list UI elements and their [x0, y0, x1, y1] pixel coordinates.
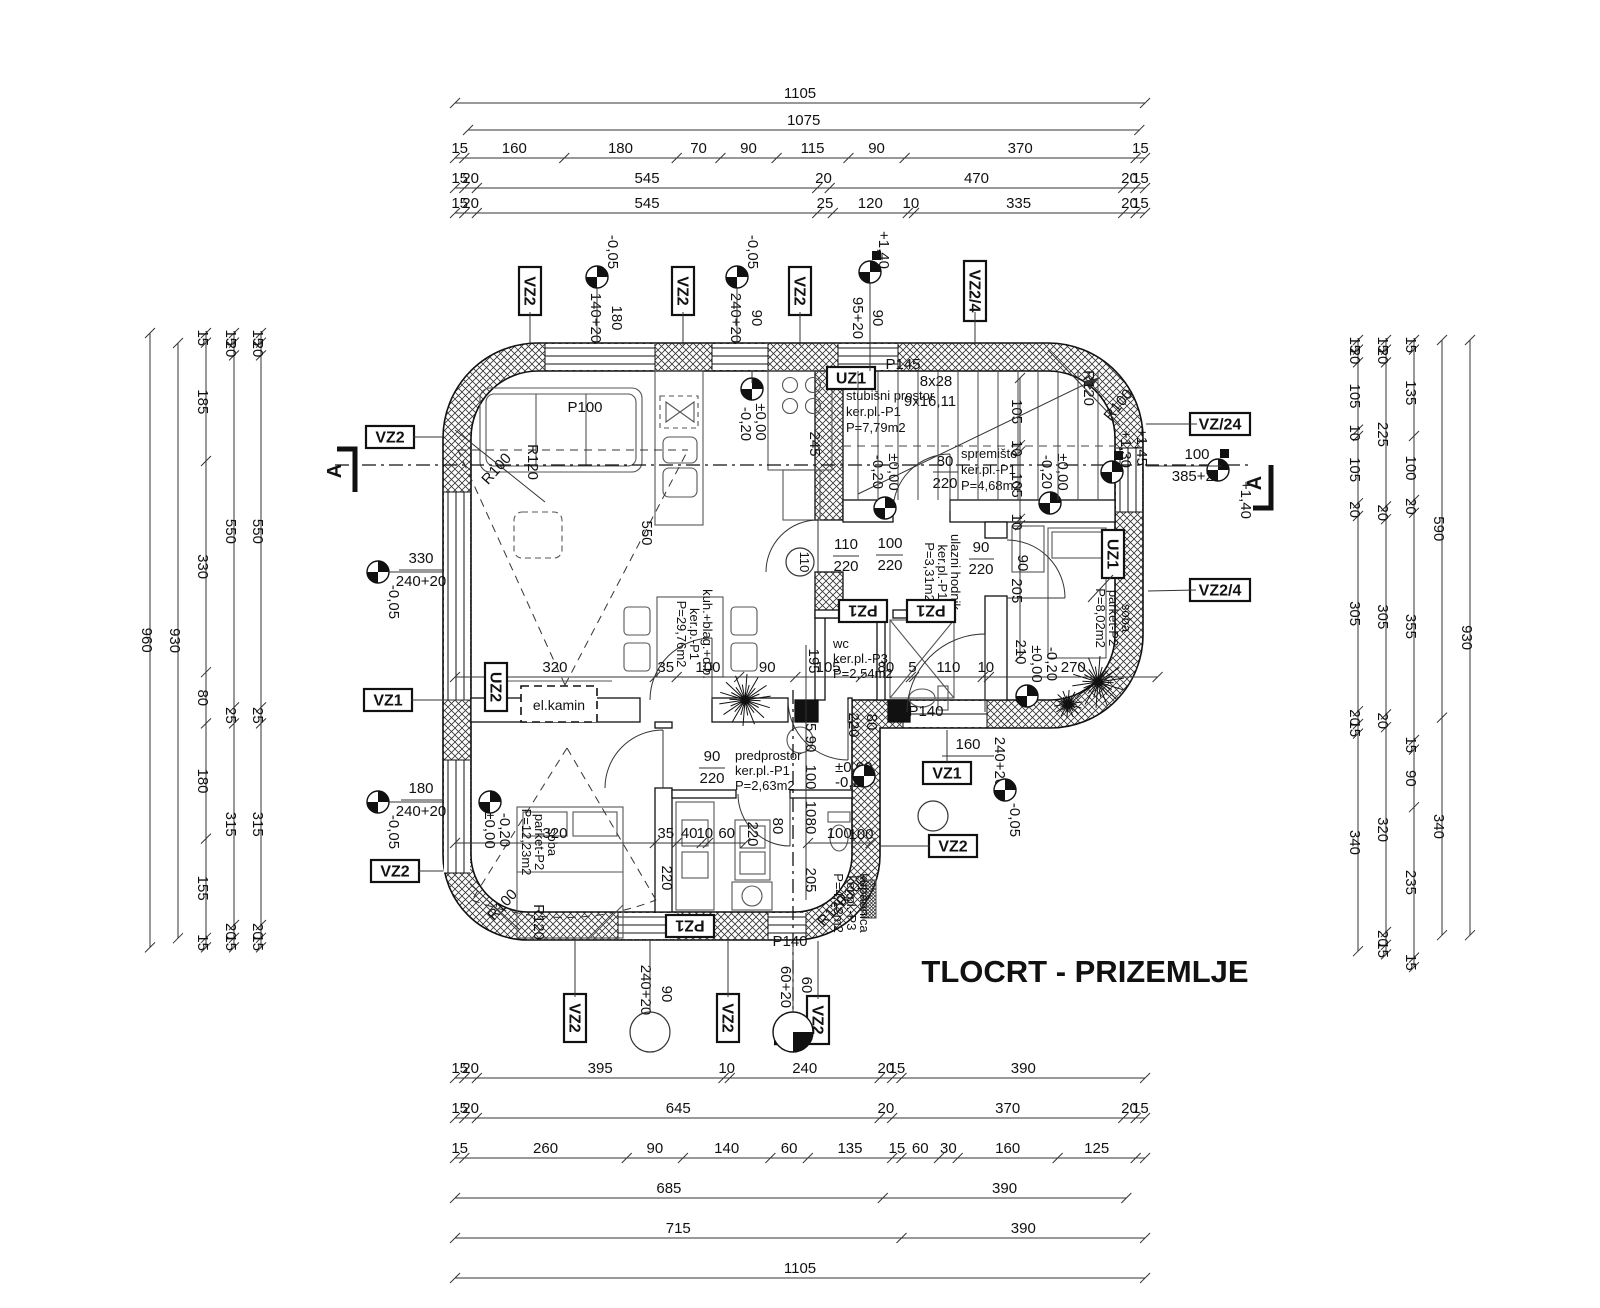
marker-box: VZ2 — [366, 426, 414, 448]
dim-label: 205 — [802, 867, 819, 892]
dim-label: 105 — [1346, 457, 1363, 482]
marker-label: VZ/24 — [1199, 417, 1242, 434]
burner — [783, 399, 798, 414]
dim-label: 210 — [1012, 639, 1029, 664]
leader-line — [1148, 590, 1196, 591]
dim-label: 10 — [802, 801, 819, 818]
drawing-title: TLOCRT - PRIZEMLJE — [921, 954, 1248, 989]
dim-label: 180 — [408, 780, 433, 797]
dim-label: 135 — [837, 1140, 862, 1157]
chair — [624, 607, 650, 635]
marker-label: VZ2 — [375, 430, 404, 447]
room-label: predprostor — [735, 748, 802, 763]
dim-label: 15 — [888, 1140, 905, 1157]
dim-label: 15 — [194, 329, 211, 346]
marker-label: VZ2 — [719, 1003, 736, 1032]
dim-label: 240+20 — [396, 573, 446, 590]
benchmark-flag-icon — [1114, 451, 1123, 460]
dim-label: 340 — [1430, 814, 1447, 839]
marker-box: UZ2 — [485, 663, 507, 711]
dim-label: 120 — [858, 195, 883, 212]
door-soba2 — [605, 730, 663, 788]
dim-label: 240+20 — [396, 803, 446, 820]
window-top-2 — [712, 344, 768, 370]
dim-label: 1105 — [784, 85, 816, 102]
dim-label: P140 — [908, 703, 943, 720]
dim-label: -0,20 — [737, 407, 754, 441]
dim-label: 60 — [718, 825, 735, 842]
dim-label: 25 — [802, 715, 819, 732]
dim-label: 205 — [1008, 578, 1025, 603]
section-letter: A — [1244, 476, 1266, 490]
dim-label: 20 — [249, 341, 266, 358]
marker-label: VZ1 — [373, 693, 402, 710]
marker-box: UZ1 — [827, 367, 875, 389]
dim-label: 90 — [1014, 555, 1031, 572]
room-label: ker.pl.-P1 — [735, 763, 790, 778]
section-letter: A — [324, 464, 346, 478]
partition-kupaonica-b — [790, 790, 852, 798]
dim-label: 370 — [1008, 140, 1033, 157]
dim-label: 35 — [657, 825, 674, 842]
marker-label: VZ2/4 — [1199, 583, 1242, 600]
dim-label: 15 — [451, 1140, 468, 1157]
dim-label: 95+20 — [849, 297, 866, 339]
benchmark-flag-icon — [1220, 449, 1229, 458]
marker-box: PZ1 — [907, 600, 955, 622]
dim-label: 20 — [815, 170, 832, 187]
dim-label: 80 — [863, 714, 880, 731]
dim-label: 80 — [769, 818, 786, 835]
marker-label: UZ1 — [1104, 539, 1121, 569]
room-label: stubišni prostor — [846, 388, 935, 403]
marker-label: VZ2/4 — [966, 270, 983, 313]
dim-label: 10 — [696, 825, 713, 842]
marker-label: UZ2 — [487, 672, 504, 702]
dim-label: 180 — [194, 768, 211, 793]
dim-label: 220 — [833, 558, 858, 575]
marker-label: VZ2 — [674, 276, 691, 305]
dim-label: 320 — [1374, 817, 1391, 842]
dim-label: 20 — [1346, 501, 1363, 518]
dim-label: 20 — [462, 1100, 479, 1117]
marker-label: VZ2 — [521, 276, 538, 305]
dim-label: -0,05 — [604, 235, 621, 269]
dim-label: R120 — [524, 444, 541, 480]
marker-box: VZ2 — [929, 835, 977, 857]
dim-label: 550 — [222, 519, 239, 544]
dim-label: 550 — [249, 519, 266, 544]
dim-label: 20 — [1346, 348, 1363, 365]
dim-label: 105 — [1346, 383, 1363, 408]
wall-hodnik-soba-b — [985, 596, 1007, 700]
fireplace-label: el.kamin — [533, 697, 585, 713]
dim-label: 90 — [973, 539, 990, 556]
dim-label: 395 — [588, 1060, 613, 1077]
dim-label: 90 — [868, 140, 885, 157]
dim-label: ±0,00 — [1028, 645, 1045, 682]
dim-label: 115 — [801, 140, 825, 157]
marker-label: VZ2 — [566, 1003, 583, 1032]
dim-label: 135 — [1402, 380, 1419, 405]
kitchen-counter — [655, 371, 703, 525]
dim-label: 240+20 — [727, 293, 744, 343]
dim-label: +1,30 — [1117, 430, 1134, 468]
dim-label: ±0,00 — [885, 453, 902, 490]
room-label: P=3,31m2 — [922, 542, 937, 602]
dim-label: 90 — [869, 310, 886, 327]
room-label: P=12,23m2 — [519, 809, 534, 876]
floor-plan-drawing: 1105107515160180709011590370151520545204… — [0, 0, 1600, 1308]
dim-label: 545 — [635, 195, 660, 212]
dim-label: 390 — [992, 1180, 1017, 1197]
dim-label: 320 — [542, 659, 567, 676]
dim-label: 180 — [608, 305, 625, 330]
dim-label: 10 — [1008, 514, 1025, 531]
partition-kupaonica-a — [672, 790, 736, 798]
dim-label: 90 — [658, 986, 675, 1003]
dim-label: P145 — [885, 356, 920, 373]
marker-box: PZ1 — [666, 915, 714, 937]
dim-label: 140 — [714, 1140, 739, 1157]
dim-label: 20 — [222, 341, 239, 358]
dim-label: 315 — [249, 812, 266, 837]
dim-label: 100 — [877, 535, 902, 552]
dim-label: 15 — [1132, 170, 1149, 187]
marker-box: VZ2 — [519, 267, 541, 315]
room-label: ker.pl.-P1 — [961, 462, 1016, 477]
dim-label: 90 — [1402, 770, 1419, 787]
dim-label: 335 — [1006, 195, 1031, 212]
dim-label: 330 — [408, 550, 433, 567]
dim-label: 220 — [699, 770, 724, 787]
dim-label: 240+20 — [637, 965, 654, 1015]
dim-label: ±0,00 — [1054, 453, 1071, 490]
dim-label: 1075 — [787, 112, 820, 129]
dim-label: 15 — [1374, 941, 1391, 958]
dim-label: 100 — [848, 826, 873, 843]
dim-label: R100 — [478, 450, 515, 488]
dim-label: 305 — [1346, 601, 1363, 626]
dim-label: 15 — [222, 934, 239, 951]
dim-label: 15 — [451, 140, 468, 157]
dim-label: 140+20 — [587, 293, 604, 343]
dim-label: 60 — [781, 1140, 798, 1157]
marker-box: VZ2 — [717, 994, 739, 1042]
fridge-symbol — [666, 402, 694, 422]
dim-label: 10 — [977, 659, 994, 676]
room-label: ker.pl.-P1 — [846, 404, 901, 419]
marker-box: UZ1 — [1102, 530, 1124, 578]
chair — [624, 643, 650, 671]
dim-label: 930 — [166, 628, 183, 653]
dim-label: 240 — [792, 1060, 817, 1077]
dim-label: 25 — [817, 195, 834, 212]
dim-label: 15 — [1132, 195, 1149, 212]
reference-circle — [630, 1012, 670, 1052]
chair — [731, 607, 757, 635]
dim-label: 645 — [666, 1100, 691, 1117]
dim-label: 60+20 — [777, 966, 794, 1008]
dim-label: 590 — [1430, 516, 1447, 541]
room-label: P=8,02m2 — [1093, 588, 1108, 648]
dim-label: ±0,00 — [481, 811, 498, 848]
marker-box: VZ1 — [364, 689, 412, 711]
dim-label: 960 — [138, 628, 155, 653]
dim-label: 110 — [834, 536, 858, 553]
sink — [663, 468, 697, 497]
room-label: wc — [832, 636, 849, 651]
marker-label: PZ1 — [675, 917, 704, 934]
dim-label: 225 — [1374, 422, 1391, 447]
reference-circle — [918, 801, 948, 831]
dim-label: P140 — [772, 933, 807, 950]
dim-label: 220 — [845, 712, 862, 737]
dim-label: P100 — [567, 399, 602, 416]
dim-label: 235 — [1402, 870, 1419, 895]
room-label: spremište — [961, 446, 1017, 461]
dim-label: 40 — [681, 825, 698, 842]
burner — [783, 378, 798, 393]
wall-stairs-bottom-b — [950, 500, 1115, 522]
marker-box: VZ2 — [564, 994, 586, 1042]
dim-label: R120 — [1080, 370, 1097, 406]
dim-label: 220 — [744, 821, 761, 846]
dim-label: 25 — [222, 707, 239, 724]
dim-label: 160 — [995, 1140, 1020, 1157]
dim-label: 20 — [462, 195, 479, 212]
dim-label: 305 — [1374, 604, 1391, 629]
dim-label: 30 — [940, 1140, 957, 1157]
dim-label: -0,05 — [385, 815, 402, 849]
room-label: P=2,63m2 — [735, 778, 795, 793]
dim-label: 245 — [806, 431, 823, 456]
sofa-seat — [486, 394, 636, 466]
dim-label: 195 — [805, 648, 822, 673]
dim-label: 90 — [704, 748, 721, 765]
wardrobe-door — [682, 852, 708, 878]
dim-label: 550 — [638, 520, 655, 545]
dim-label: 390 — [1011, 1060, 1036, 1077]
room-label: P=2,54m2 — [833, 666, 893, 681]
dim-label: 545 — [635, 170, 660, 187]
section-b-marker — [793, 1032, 813, 1052]
dim-label: 35 — [657, 659, 674, 676]
room-label: P=29,76m2 — [674, 601, 689, 668]
marker-box: VZ/24 — [1190, 413, 1250, 435]
window-top-1 — [545, 344, 655, 370]
dim-label: 20 — [878, 1100, 895, 1117]
dim-label: R120 — [530, 904, 547, 940]
floor-plan-sheet: { "title": "TLOCRT - PRIZEMLJE", "colors… — [0, 0, 1600, 1308]
dim-label: 10 — [1346, 424, 1363, 441]
dim-label: -0,20 — [496, 813, 513, 847]
dim-label: 100 — [1402, 455, 1419, 480]
bed-left-pillow — [573, 812, 617, 836]
dim-label: 220 — [877, 557, 902, 574]
armchair — [514, 512, 562, 558]
dim-label: 155 — [194, 876, 211, 901]
marker-label: PZ1 — [916, 602, 945, 619]
dim-label: 220 — [658, 865, 675, 890]
dim-label: 125 — [1084, 1140, 1109, 1157]
wall-hodnik-soba-a — [985, 522, 1007, 538]
dim-label: 685 — [656, 1180, 681, 1197]
wall-soba2-right — [655, 788, 672, 912]
dim-label: 15 — [888, 1060, 905, 1077]
dim-label: 110 — [936, 659, 960, 676]
dim-label: 90 — [802, 736, 819, 753]
dim-label: 180 — [608, 140, 633, 157]
dim-label: 60 — [912, 1140, 929, 1157]
dim-label: 220 — [968, 561, 993, 578]
room-label: P=7,79m2 — [846, 420, 906, 435]
marker-label: VZ1 — [932, 766, 961, 783]
dim-label: 15 — [194, 934, 211, 951]
window-left-1 — [444, 492, 470, 700]
marker-box: VZ2 — [789, 267, 811, 315]
dim-label: 80 — [194, 689, 211, 706]
marker-label: PZ1 — [848, 602, 877, 619]
dim-label: 90 — [740, 140, 757, 157]
wall-soba2-right-top — [655, 722, 672, 728]
dim-label: 80 — [802, 818, 819, 835]
marker-label: VZ2 — [380, 864, 409, 881]
dim-label: 100 — [802, 764, 819, 789]
dim-label: 330 — [194, 554, 211, 579]
dim-label: -0,20 — [1038, 455, 1055, 489]
dim-label: 15 — [1402, 336, 1419, 353]
dim-label: 15 — [1132, 140, 1149, 157]
marker-box: VZ2 — [672, 267, 694, 315]
dim-label: 1105 — [784, 1260, 816, 1277]
dim-label: 100 — [1184, 446, 1209, 463]
dim-label: 315 — [222, 812, 239, 837]
dim-label: 20 — [1374, 504, 1391, 521]
marker-label: VZ2 — [791, 276, 808, 305]
marker-label: VZ2 — [938, 839, 967, 856]
marker-label: UZ1 — [836, 371, 866, 388]
dim-label: 20 — [1374, 712, 1391, 729]
dim-label: +1,45 — [1133, 428, 1150, 466]
bath-cabinet-door — [740, 852, 765, 874]
dim-label: 5 — [908, 659, 916, 676]
dim-label: -0,05 — [385, 585, 402, 619]
dim-label: 15 — [1402, 736, 1419, 753]
dim-label: 15 — [249, 934, 266, 951]
washing-machine-drum — [742, 886, 762, 906]
dim-label: 25 — [249, 707, 266, 724]
dim-label: 20 — [1374, 348, 1391, 365]
window-left-2 — [444, 760, 470, 873]
dim-label: 470 — [964, 170, 989, 187]
dim-label: 70 — [690, 140, 707, 157]
dim-label: 390 — [1011, 1220, 1036, 1237]
chair — [731, 643, 757, 671]
dim-label: 80 — [937, 453, 954, 470]
toilet-tank-bath — [828, 812, 850, 822]
dim-label: 90 — [748, 310, 765, 327]
marker-box: VZ1 — [923, 762, 971, 784]
dim-label: 90 — [759, 659, 776, 676]
dim-label: 105 — [1008, 399, 1025, 424]
dim-label: 10 — [718, 1060, 735, 1077]
marker-box: PZ1 — [839, 600, 887, 622]
dim-label: 20 — [462, 170, 479, 187]
dim-label: 715 — [666, 1220, 691, 1237]
dim-label: -0,05 — [744, 235, 761, 269]
dim-label: 60 — [798, 977, 815, 994]
room-label: ker.pl.-P3 — [833, 651, 888, 666]
room-label: P=4,68m2 — [961, 478, 1021, 493]
dim-label: 20 — [1402, 498, 1419, 515]
dim-label: 110 — [797, 552, 812, 573]
dim-label: 160 — [955, 736, 980, 753]
dim-label: 355 — [1402, 614, 1419, 639]
dim-label: -0,20 — [1043, 647, 1060, 681]
marker-box: VZ2 — [371, 860, 419, 882]
dim-label: 220 — [932, 475, 957, 492]
bed-right-pillow — [1052, 532, 1102, 558]
benchmark-flag-icon — [872, 251, 881, 260]
dim-label: 10 — [903, 195, 920, 212]
dim-label: 930 — [1458, 625, 1475, 650]
dim-label: 340 — [1346, 830, 1363, 855]
dim-label: 370 — [995, 1100, 1020, 1117]
dim-label: -0,05 — [1006, 803, 1023, 837]
dim-label: 185 — [194, 389, 211, 414]
dim-label: 90 — [646, 1140, 663, 1157]
dim-label: 15 — [1402, 954, 1419, 971]
marker-box: VZ2/4 — [1190, 579, 1250, 601]
dim-label: 15 — [1132, 1100, 1149, 1117]
dim-label: 15 — [1346, 720, 1363, 737]
dim-label: 160 — [502, 140, 527, 157]
dim-label: 260 — [533, 1140, 558, 1157]
dim-label: 20 — [462, 1060, 479, 1077]
